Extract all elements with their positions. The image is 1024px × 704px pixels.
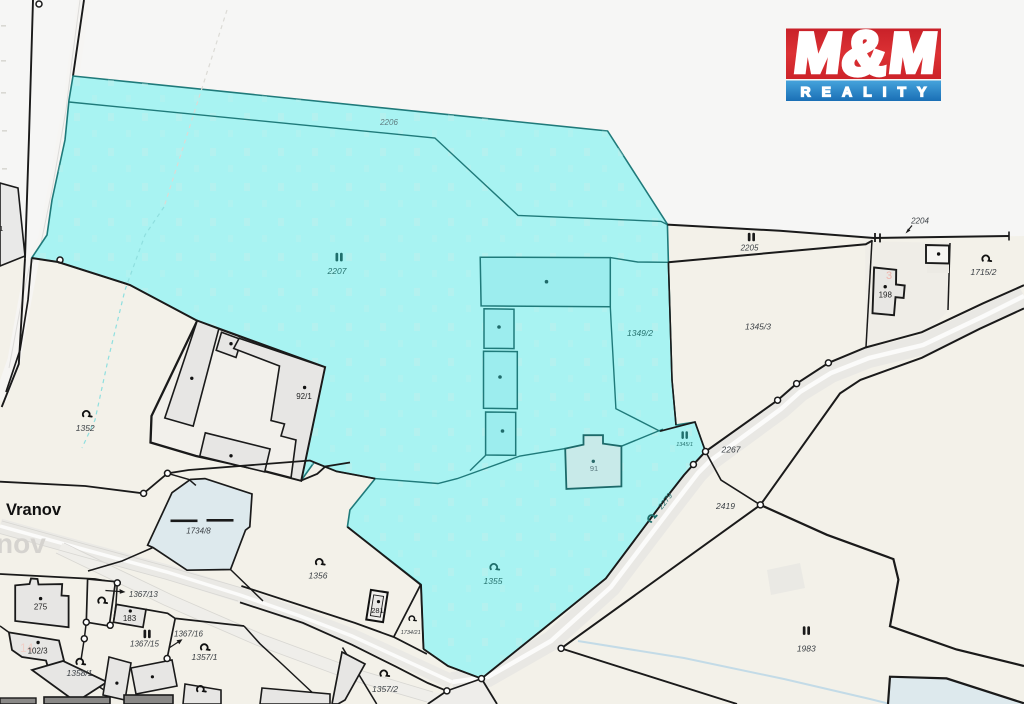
svg-text:1345/3: 1345/3 <box>745 322 771 332</box>
svg-text:198: 198 <box>879 291 893 300</box>
svg-text:281: 281 <box>371 606 384 615</box>
svg-text:91: 91 <box>590 464 598 473</box>
svg-text:1715/2: 1715/2 <box>971 267 997 277</box>
svg-text:1355: 1355 <box>484 576 503 586</box>
svg-text:nov: nov <box>0 528 46 559</box>
svg-text:/1: /1 <box>0 224 3 233</box>
svg-text:1367/15: 1367/15 <box>130 640 159 649</box>
svg-text:2204: 2204 <box>910 217 929 226</box>
svg-text:&: & <box>840 20 890 89</box>
svg-text:2206: 2206 <box>379 118 398 127</box>
svg-text:2205: 2205 <box>740 244 759 253</box>
svg-text:183: 183 <box>123 614 137 623</box>
svg-text:1345/1: 1345/1 <box>676 442 693 448</box>
svg-text:92/1: 92/1 <box>296 392 312 401</box>
svg-text:1357/2: 1357/2 <box>372 684 398 694</box>
svg-text:1358/1: 1358/1 <box>67 668 93 678</box>
svg-text:1367/16: 1367/16 <box>174 630 203 639</box>
svg-text:1734/21: 1734/21 <box>401 630 421 636</box>
svg-text:1352: 1352 <box>76 423 95 433</box>
svg-text:M: M <box>791 21 845 84</box>
svg-text:3: 3 <box>886 270 892 282</box>
svg-text:102/3: 102/3 <box>28 647 49 656</box>
svg-text:Vranov: Vranov <box>6 501 62 519</box>
svg-text:1357/1: 1357/1 <box>192 652 218 662</box>
svg-text:275: 275 <box>34 603 48 612</box>
svg-text:2267: 2267 <box>721 445 741 455</box>
svg-text:M: M <box>886 21 940 84</box>
svg-text:1983: 1983 <box>797 644 816 654</box>
svg-text:REALITY: REALITY <box>801 84 938 100</box>
svg-text:1367/13: 1367/13 <box>129 590 158 599</box>
svg-text:1349/2: 1349/2 <box>627 328 653 338</box>
svg-text:2419: 2419 <box>715 501 735 511</box>
svg-text:1356: 1356 <box>309 571 328 581</box>
svg-text:2207: 2207 <box>327 266 347 276</box>
svg-text:1734/8: 1734/8 <box>186 527 211 536</box>
